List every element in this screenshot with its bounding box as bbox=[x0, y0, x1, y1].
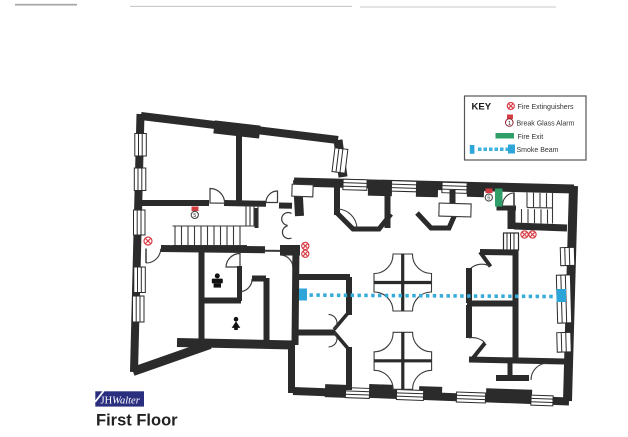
svg-text:Fire Exit: Fire Exit bbox=[518, 134, 544, 141]
svg-text:KEY: KEY bbox=[472, 102, 492, 113]
svg-text:First Floor: First Floor bbox=[96, 412, 178, 430]
svg-text:Break Glass Alarm: Break Glass Alarm bbox=[517, 121, 575, 128]
svg-text:5: 5 bbox=[193, 213, 196, 219]
svg-text:Smoke Beam: Smoke Beam bbox=[517, 147, 559, 154]
svg-text:JHWalter: JHWalter bbox=[101, 396, 141, 407]
svg-text:6: 6 bbox=[487, 196, 490, 202]
svg-text:1: 1 bbox=[508, 121, 511, 127]
svg-text:Fire Extinguishers: Fire Extinguishers bbox=[518, 104, 575, 111]
